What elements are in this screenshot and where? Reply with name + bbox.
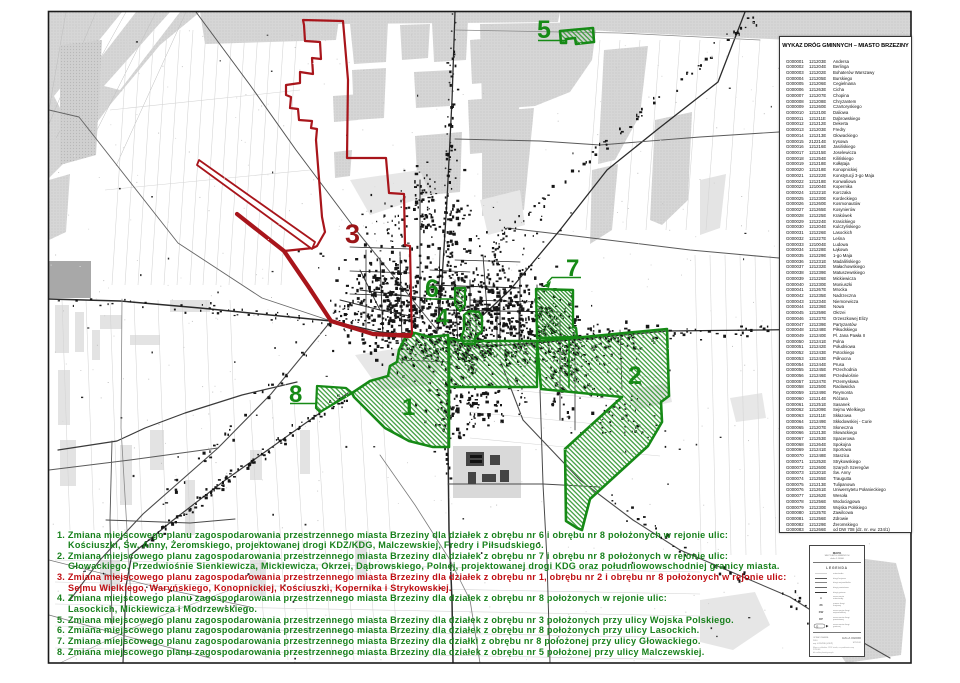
svg-text:3: 3 xyxy=(345,219,360,249)
svg-text:1: 1 xyxy=(402,394,415,421)
svg-text:2: 2 xyxy=(628,362,642,390)
svg-text:4: 4 xyxy=(436,304,449,330)
